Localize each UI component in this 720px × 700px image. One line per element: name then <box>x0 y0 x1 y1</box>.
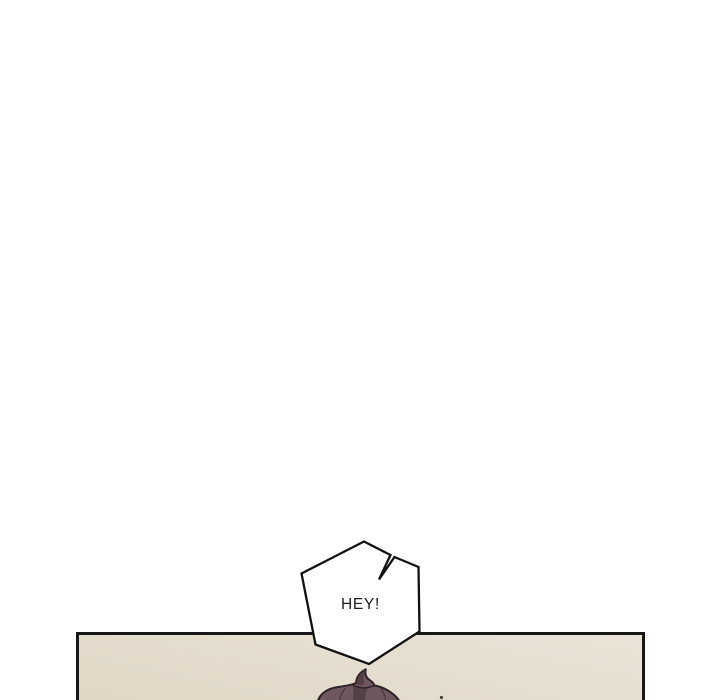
webtoon-page: HEY! <box>0 0 720 700</box>
speech-bubble-text: HEY! <box>341 596 380 613</box>
ink-speck <box>440 696 443 699</box>
comic-scene: HEY! <box>0 0 720 700</box>
